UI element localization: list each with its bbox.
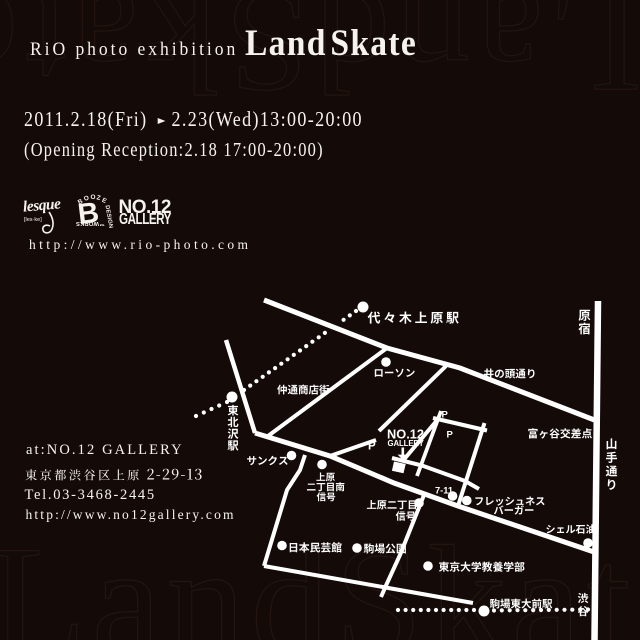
svg-text:P: P — [368, 441, 376, 453]
svg-text:7-11: 7-11 — [435, 486, 453, 496]
svg-text:P: P — [442, 410, 449, 421]
svg-text:GALLERY: GALLERY — [388, 439, 425, 448]
svg-text:P: P — [447, 430, 454, 441]
